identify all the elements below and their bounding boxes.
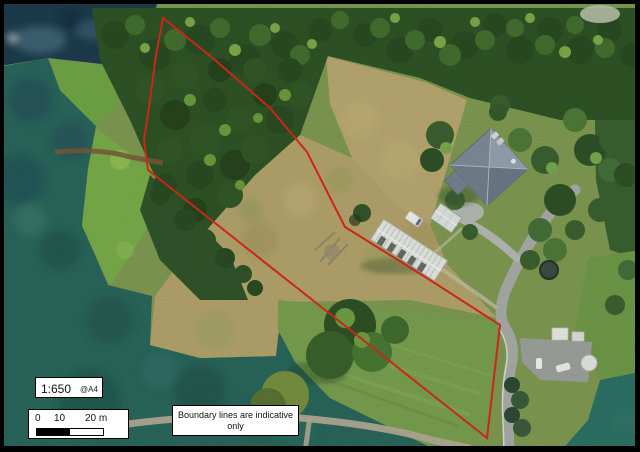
paper-size: @A4 [80, 385, 98, 394]
scale-tick-0: 0 [35, 413, 41, 424]
scale-bar-box: 0 10 20 m [28, 409, 129, 439]
map-viewport: 1:650@A4 0 10 20 m Boundary lines are in… [0, 0, 640, 452]
scale-tick-20m: 20 m [85, 413, 107, 424]
scale-tick-10: 10 [54, 413, 65, 424]
scale-ratio: 1:650 [41, 382, 71, 396]
scale-text-box: 1:650@A4 [35, 377, 103, 398]
disclaimer-text: Boundary lines are indicative only [178, 410, 293, 431]
disclaimer-box: Boundary lines are indicative only [172, 405, 299, 436]
scale-bar [36, 428, 104, 436]
